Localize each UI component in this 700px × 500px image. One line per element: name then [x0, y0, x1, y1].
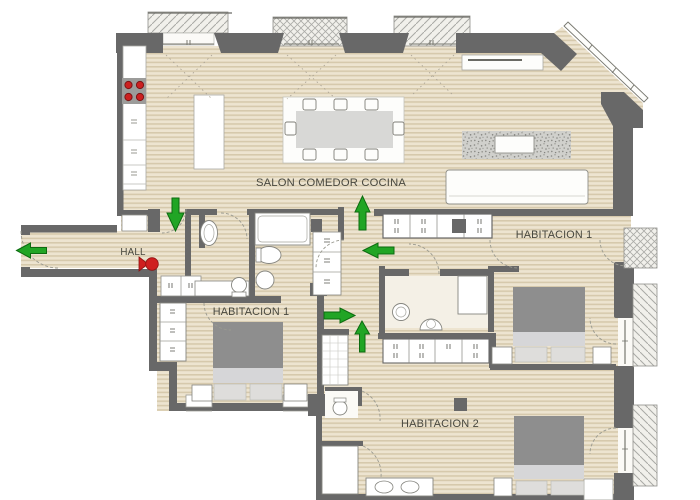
svg-text:SALON COMEDOR COCINA: SALON COMEDOR COCINA [256, 177, 406, 189]
svg-text:HABITACION 1: HABITACION 1 [213, 306, 290, 318]
svg-text:HABITACION 2: HABITACION 2 [401, 418, 479, 430]
svg-text:HALL: HALL [120, 247, 146, 258]
svg-text:HABITACION 1: HABITACION 1 [516, 229, 593, 241]
